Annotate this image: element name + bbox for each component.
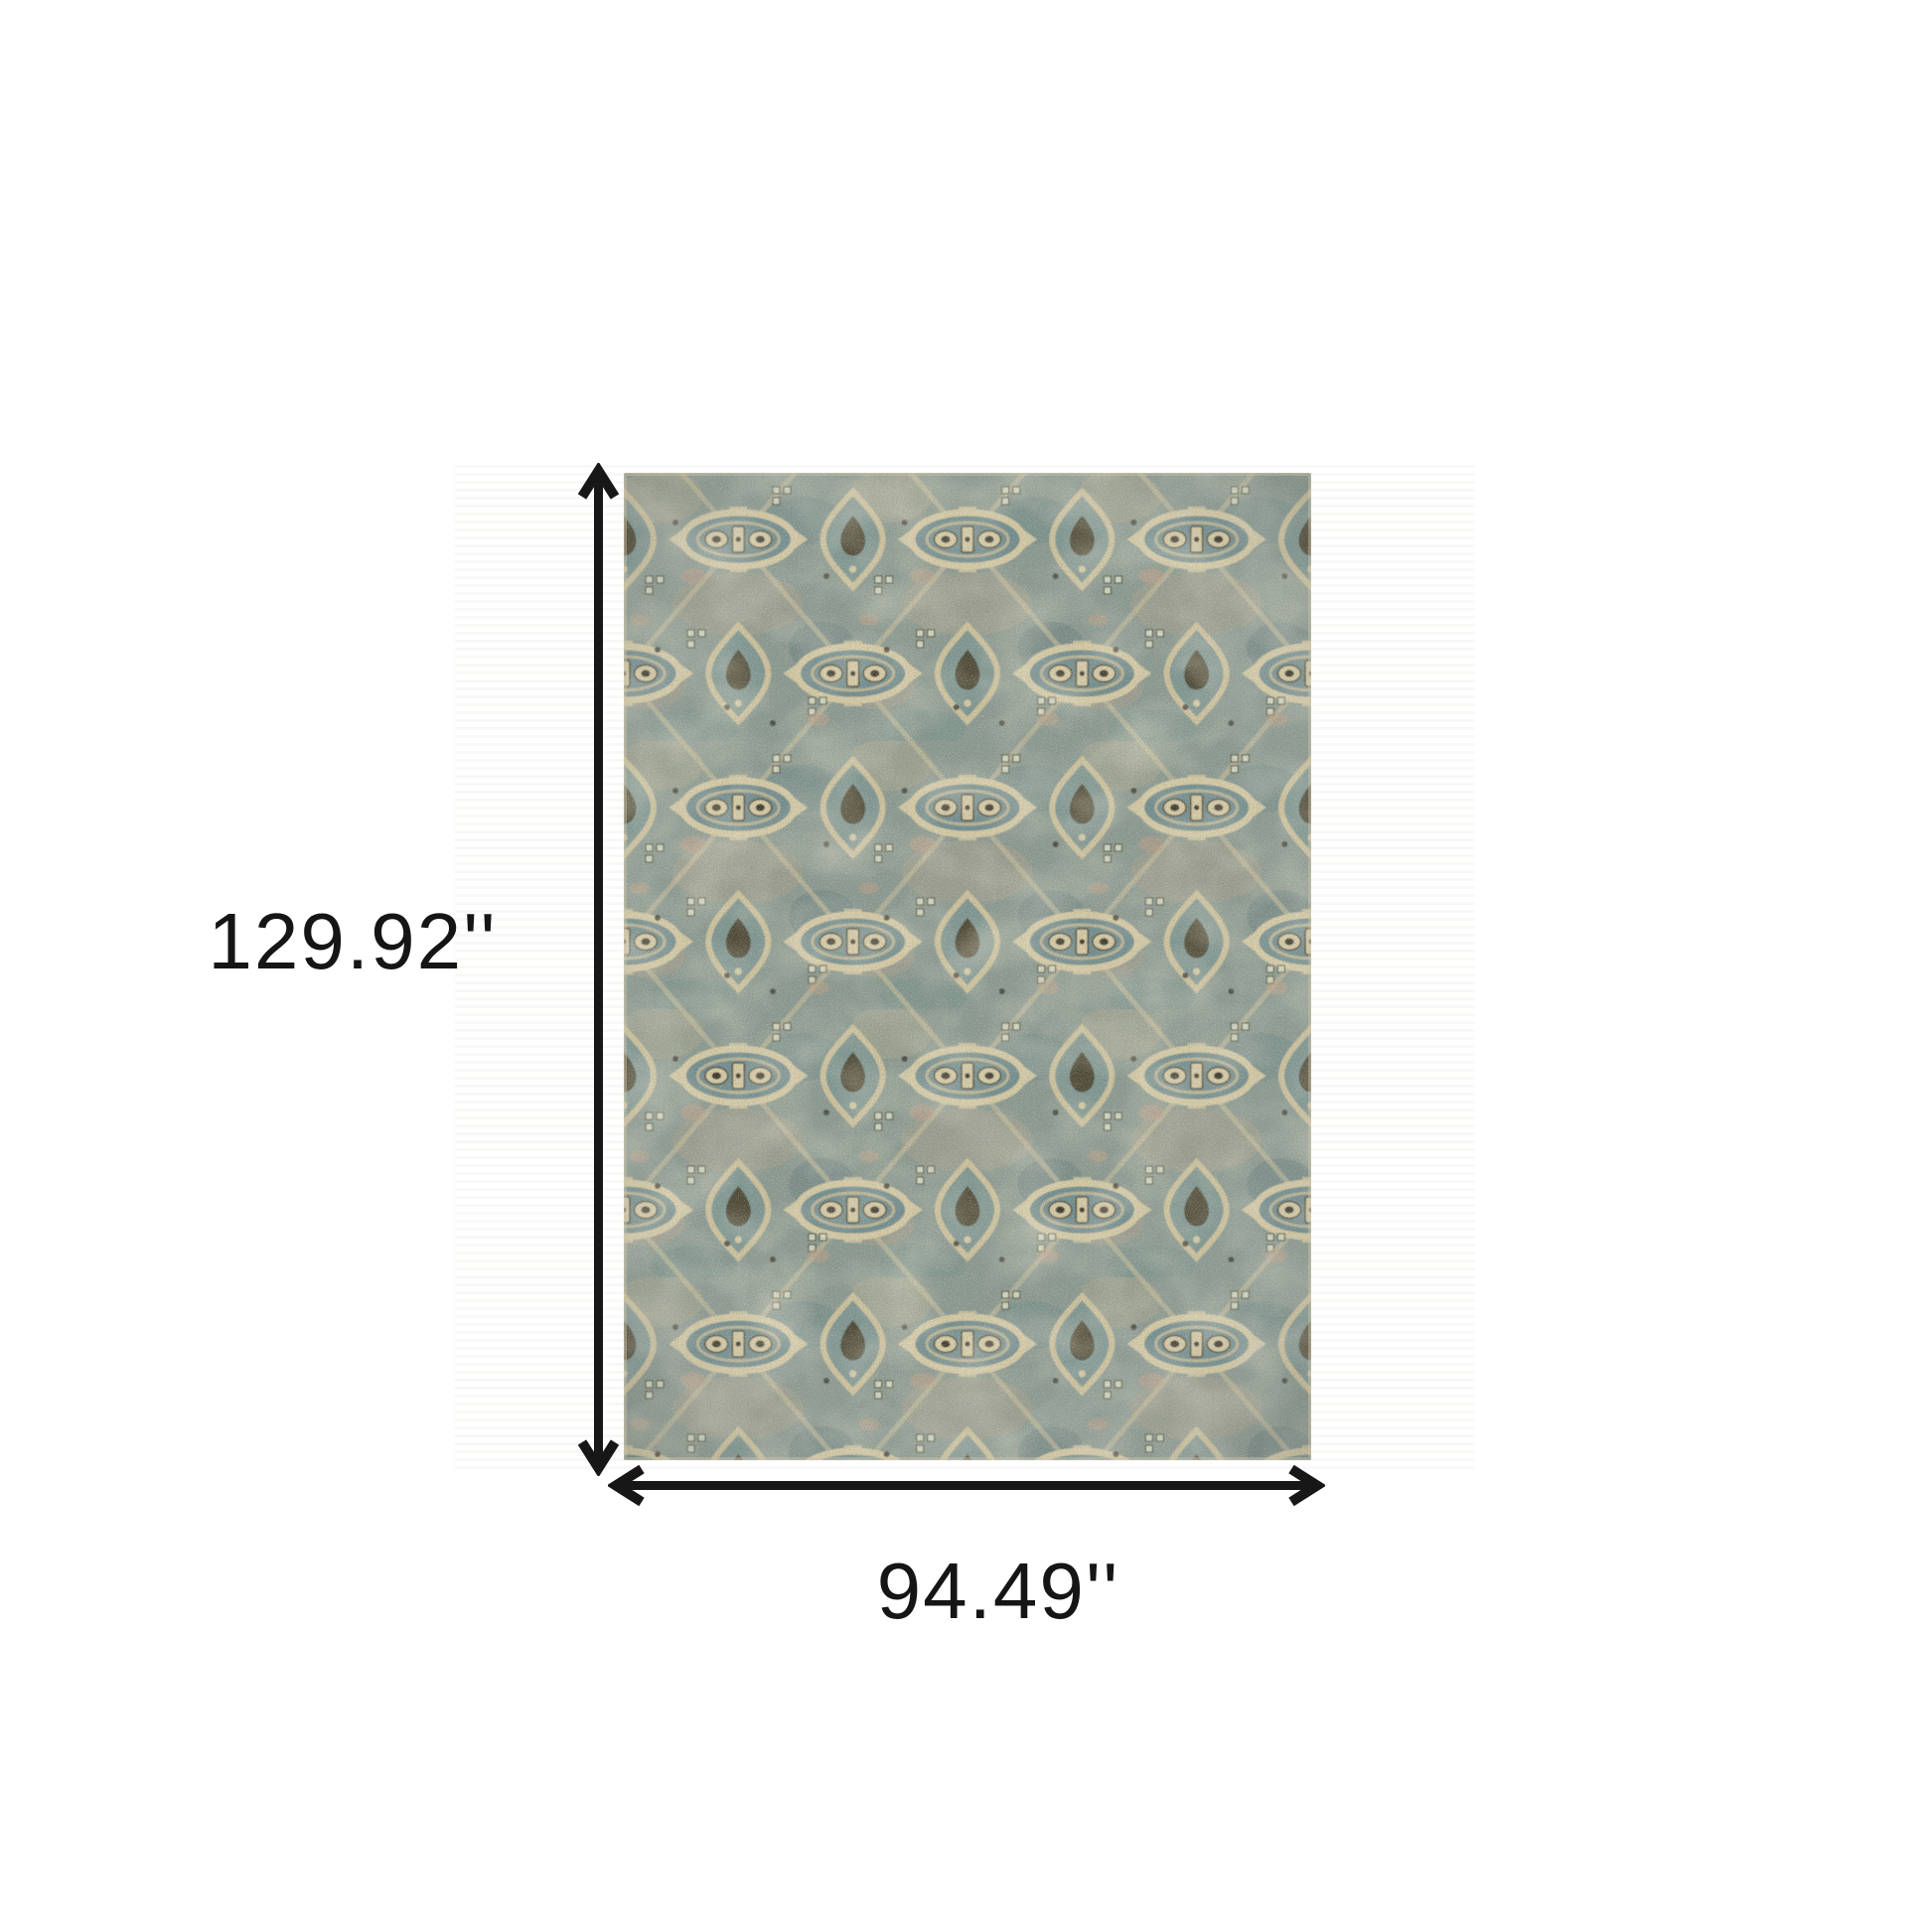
- rug-product-image: [624, 473, 1311, 1460]
- rug-pattern-graphic: [624, 473, 1311, 1460]
- height-dimension-label: 129.92'': [139, 902, 566, 981]
- width-dimension-arrow: [608, 1463, 1325, 1508]
- product-dimension-diagram: 129.92'' 94.49'': [0, 0, 1932, 1932]
- height-dimension-arrow: [576, 463, 621, 1476]
- width-dimension-label: 94.49'': [785, 1552, 1212, 1631]
